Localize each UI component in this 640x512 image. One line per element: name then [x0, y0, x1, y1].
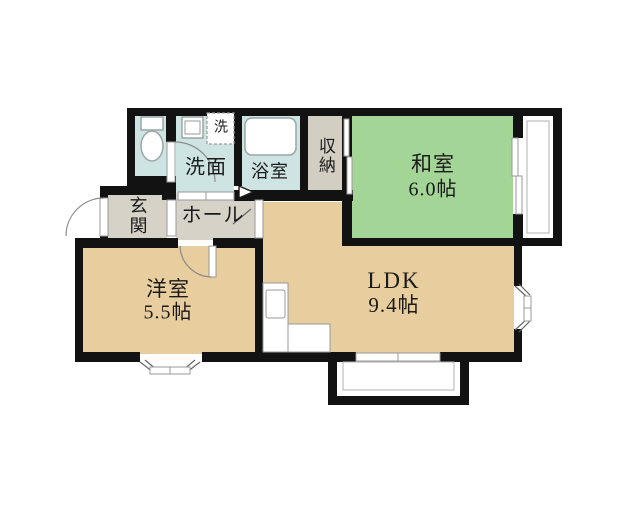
- wall-ldk-right-a: [514, 246, 522, 286]
- wall-genkan-left-upper: [100, 186, 108, 198]
- bathtub-icon: [245, 118, 296, 155]
- wall-ldk-bottom-a: [263, 352, 356, 362]
- washitsu-window-pane-1: [512, 138, 518, 176]
- wall-youshitsu-bottom-a: [75, 352, 140, 362]
- wall-youshitsu-bottom-b: [202, 352, 263, 362]
- youshitsu-label: 洋室: [146, 278, 190, 300]
- entrance-door-leaf: [100, 198, 108, 236]
- youshitsu-size-label: 5.5帖: [144, 303, 193, 324]
- toilet-bowl-icon: [141, 131, 163, 161]
- wall-ldk-right-b: [514, 329, 522, 362]
- washitsu-room: [352, 116, 513, 238]
- genkan-label: 玄関: [128, 196, 147, 236]
- washitsu-label: 和室: [411, 153, 455, 175]
- floor-plan-drawing: [0, 0, 640, 512]
- bay-east-hatch-4: [519, 321, 530, 332]
- entrance-door-swing: [66, 198, 104, 236]
- ldk-label: LDK: [367, 269, 420, 293]
- bay-east-hatch-1: [515, 286, 527, 297]
- washroom-label: 洗面: [185, 158, 227, 179]
- floor-plan: 和室 6.0帖 LDK 9.4帖 洋室 5.5帖 洗面 浴室 収納 玄関 ホール…: [0, 0, 640, 512]
- wall-balcony-east-frame: [553, 108, 562, 246]
- toilet-tank-icon: [141, 117, 163, 130]
- wall-washitsu-right-lower: [513, 214, 523, 246]
- kitchen-sink-icon: [266, 290, 285, 318]
- wall-toilet-left: [127, 108, 135, 180]
- ldk-corridor: [263, 202, 342, 248]
- balcony-south: [337, 362, 460, 396]
- wall-toilet-washroom-upper: [166, 108, 176, 142]
- toilet-door-leaf: [167, 142, 175, 182]
- wall-washitsu-bottom: [342, 238, 562, 246]
- wall-hall-bottom-a: [75, 238, 178, 248]
- washitsu-window-pane-2: [516, 176, 522, 214]
- washing-machine-label: 洗: [214, 122, 228, 137]
- wall-washitsu-right-upper: [513, 116, 523, 138]
- wall-ldk-bottom-b: [440, 352, 522, 362]
- wall-washroom-bottom: [162, 190, 176, 200]
- wall-youshitsu-left: [75, 238, 83, 362]
- storage-sliding-door-1: [344, 119, 349, 156]
- hall-ldk-opening: [255, 200, 263, 238]
- wall-washroom-bath: [234, 116, 242, 186]
- bathroom-label: 浴室: [251, 163, 289, 182]
- storage-sliding-door-2: [347, 157, 352, 194]
- youshitsu-door-leaf: [209, 246, 216, 277]
- bay-east-hatch-2: [519, 284, 530, 295]
- ldk-size-label: 9.4帖: [368, 294, 419, 316]
- washitsu-size-label: 6.0帖: [409, 180, 458, 201]
- storage-label: 収納: [316, 137, 334, 175]
- hall-label: ホール: [182, 206, 245, 227]
- wall-youshitsu-right: [255, 238, 263, 362]
- wall-bath-storage: [300, 116, 308, 190]
- kitchen-counter-horizontal: [288, 324, 330, 352]
- wall-balcony-south-bottom: [328, 396, 469, 405]
- genkan-step-strip: [167, 200, 176, 236]
